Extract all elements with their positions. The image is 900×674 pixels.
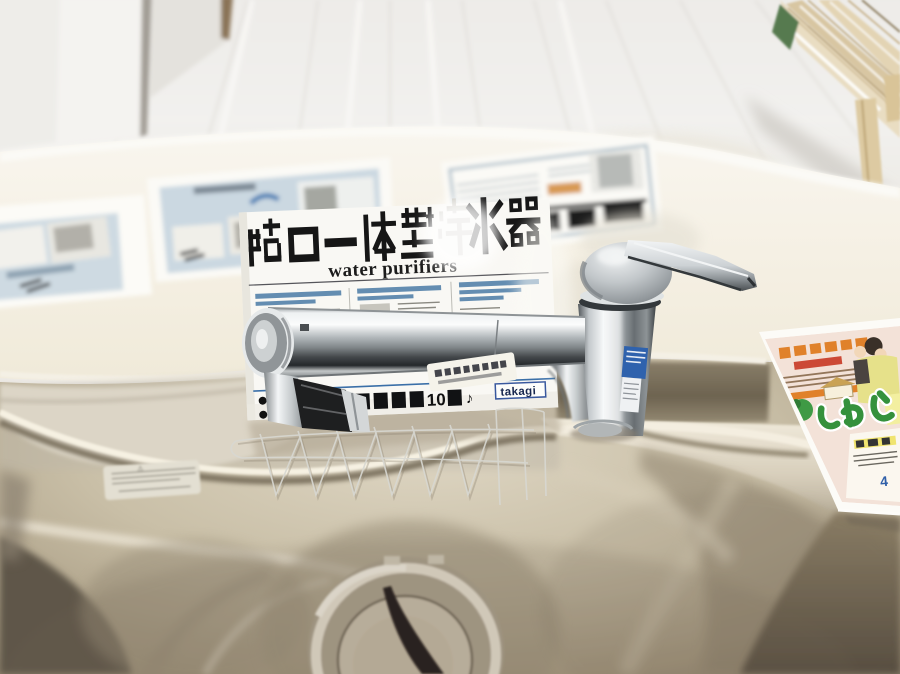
svg-text:⚠: ⚠ xyxy=(137,465,144,473)
svg-text:♪: ♪ xyxy=(465,390,473,407)
svg-text:takagi: takagi xyxy=(500,385,536,398)
svg-text:10: 10 xyxy=(426,390,446,410)
